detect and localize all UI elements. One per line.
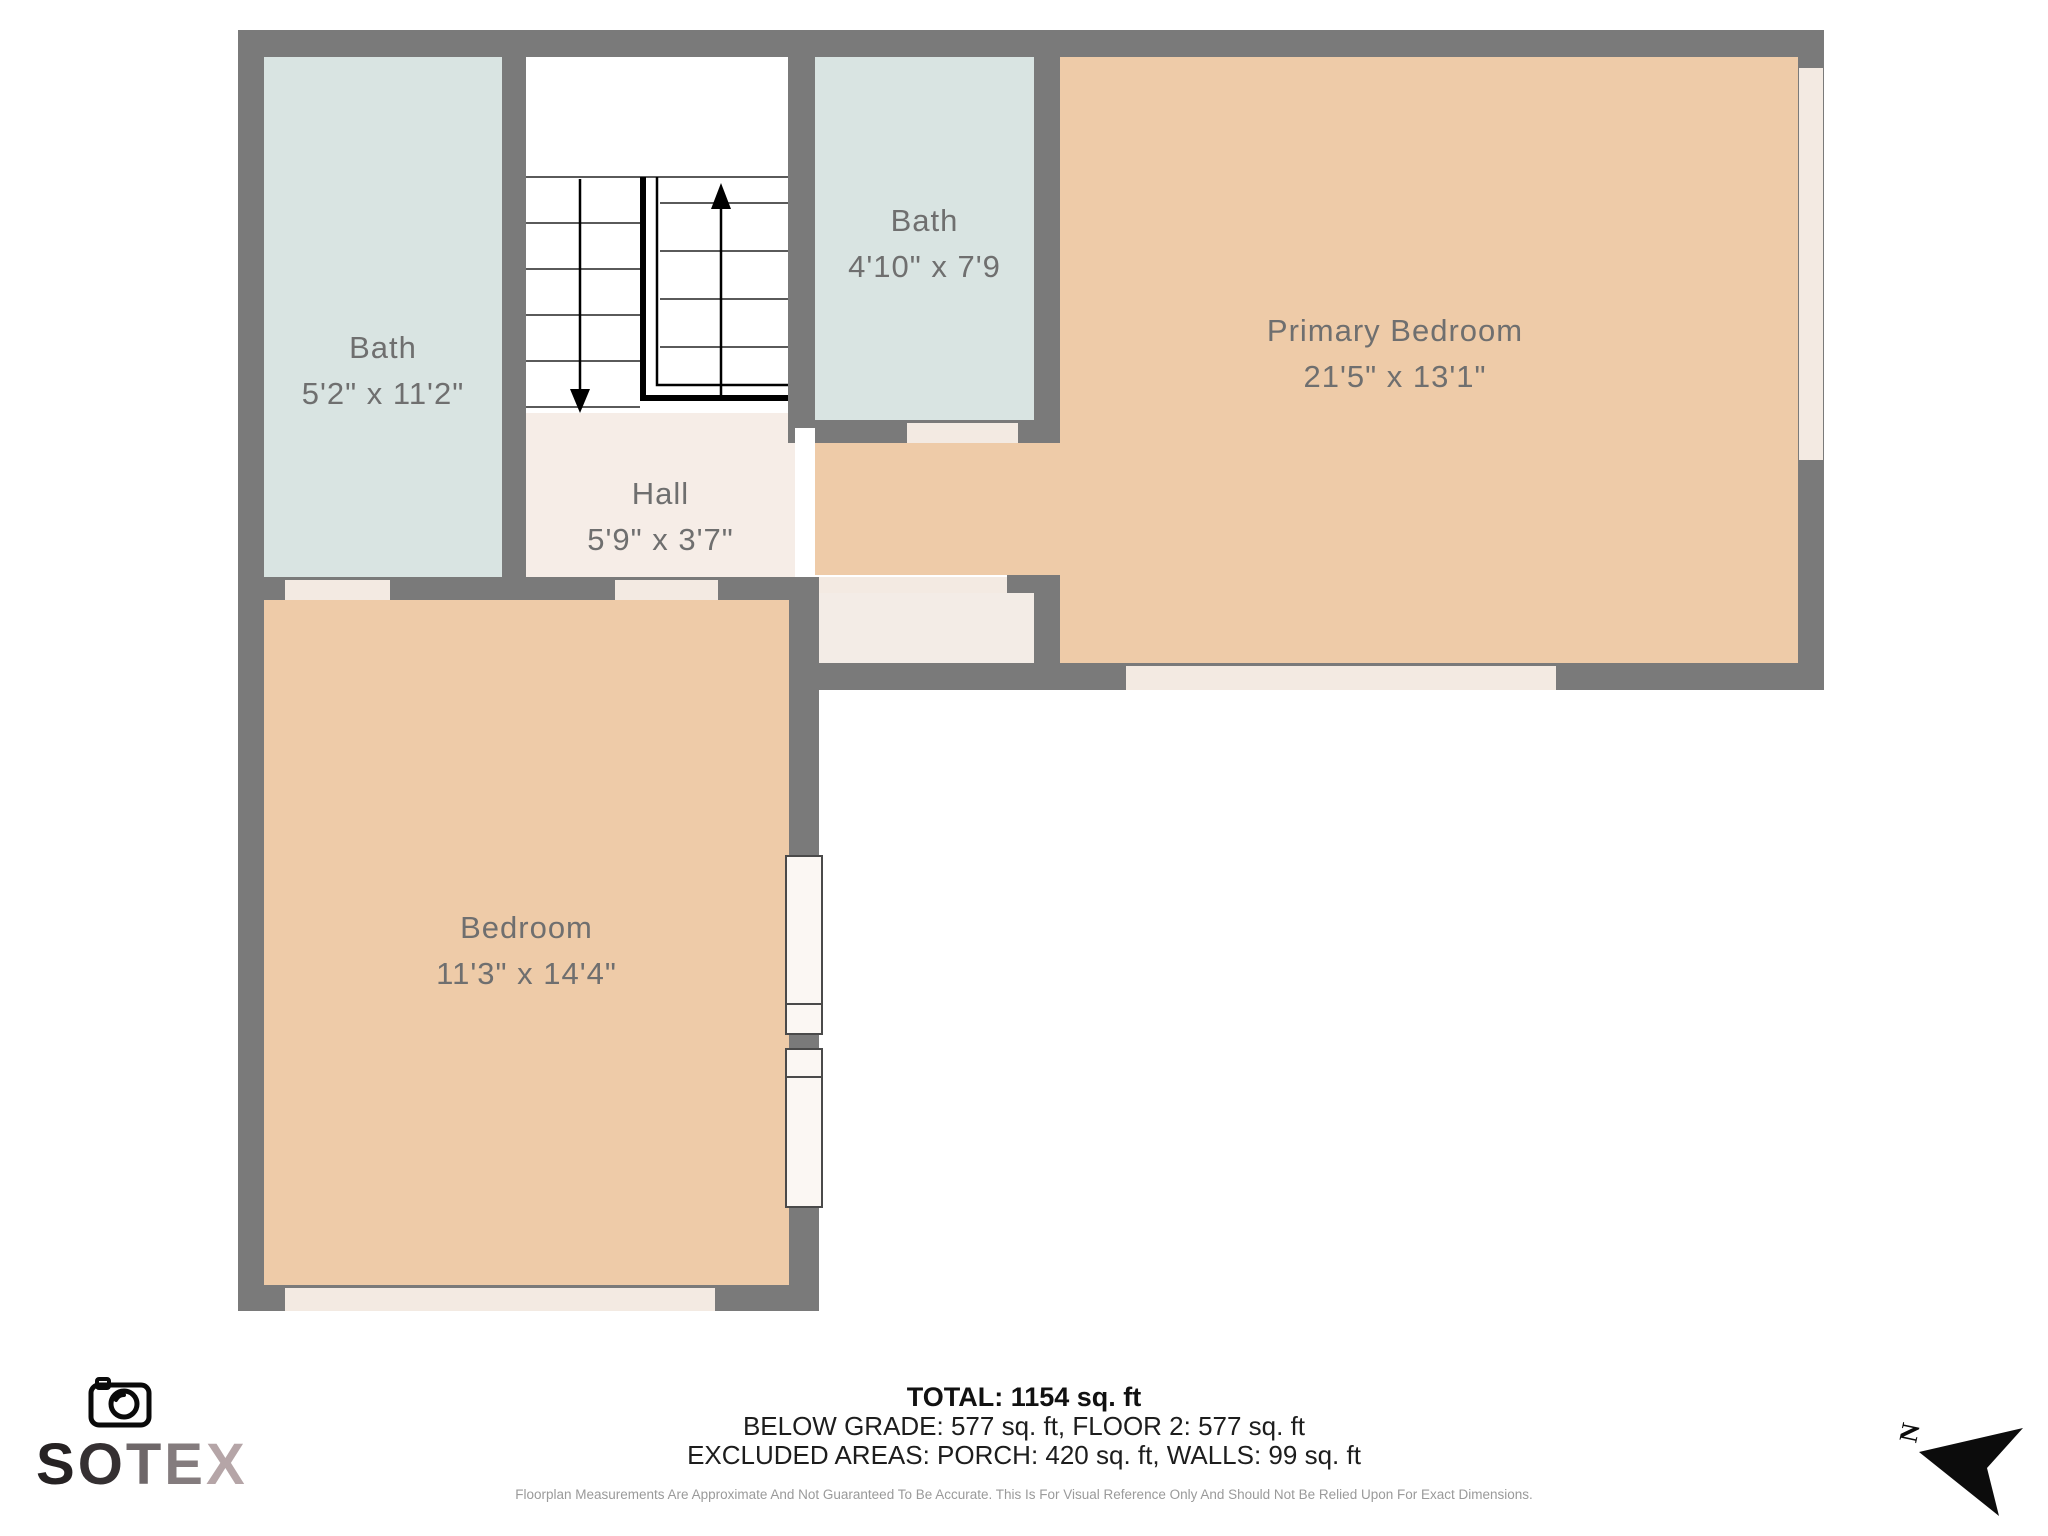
floor-plan: Bath 5'2" x 11'2" Bath 4'10" x 7'9 Hall … [0,0,2048,1536]
door-opening [615,580,718,600]
doorway-gap [795,428,815,558]
room-primary-bedroom-entry [815,443,1060,575]
camera-icon [88,1376,154,1430]
room-label-primary-bedroom: Primary Bedroom 21'5" x 13'1" [1026,308,1764,400]
north-arrow-icon: N [1895,1420,2035,1530]
logo-text: SOTEX [36,1436,248,1494]
wall [238,30,264,1311]
room-name: Hall [526,471,795,517]
stairs-icon [526,57,788,413]
room-name: Bath [815,198,1034,244]
room-label-hall: Hall 5'9" x 3'7" [526,471,795,563]
room-bath-upper-left [264,57,502,577]
door-opening [907,423,1018,443]
disclaimer-text: Floorplan Measurements Are Approximate A… [404,1487,1644,1502]
wall [1007,575,1034,593]
window-icon [785,855,823,1035]
up-arrow-icon [711,183,731,395]
down-arrow-icon [570,179,590,413]
wall [502,57,526,600]
room-dimensions: 5'2" x 11'2" [264,371,502,417]
room-dimensions: 11'3" x 14'4" [264,951,789,997]
window-opening [1799,68,1823,460]
north-label: N [1895,1420,1926,1445]
excluded-areas-text: EXCLUDED AREAS: PORCH: 420 sq. ft, WALLS… [504,1441,1544,1470]
window-opening [285,1288,715,1311]
room-dimensions: 5'9" x 3'7" [526,517,795,563]
wall [788,57,815,443]
room-label-bath-upper-left: Bath 5'2" x 11'2" [264,325,502,417]
room-dimensions: 4'10" x 7'9 [815,244,1034,290]
wall [1034,575,1060,663]
total-area-text: TOTAL: 1154 sq. ft [504,1382,1544,1413]
room-label-bath-upper-mid: Bath 4'10" x 7'9 [815,198,1034,290]
door-opening [1126,666,1556,690]
door-opening [819,577,1007,593]
room-name: Bedroom [264,905,789,951]
window-icon [785,1048,823,1208]
room-name: Bath [264,325,502,371]
floor-areas-text: BELOW GRADE: 577 sq. ft, FLOOR 2: 577 sq… [504,1412,1544,1441]
room-dimensions: 21'5" x 13'1" [1026,354,1764,400]
door-opening [285,580,390,600]
room-label-bedroom: Bedroom 11'3" x 14'4" [264,905,789,997]
closet [819,593,1034,663]
wall [238,30,1824,57]
room-name: Primary Bedroom [1026,308,1764,354]
